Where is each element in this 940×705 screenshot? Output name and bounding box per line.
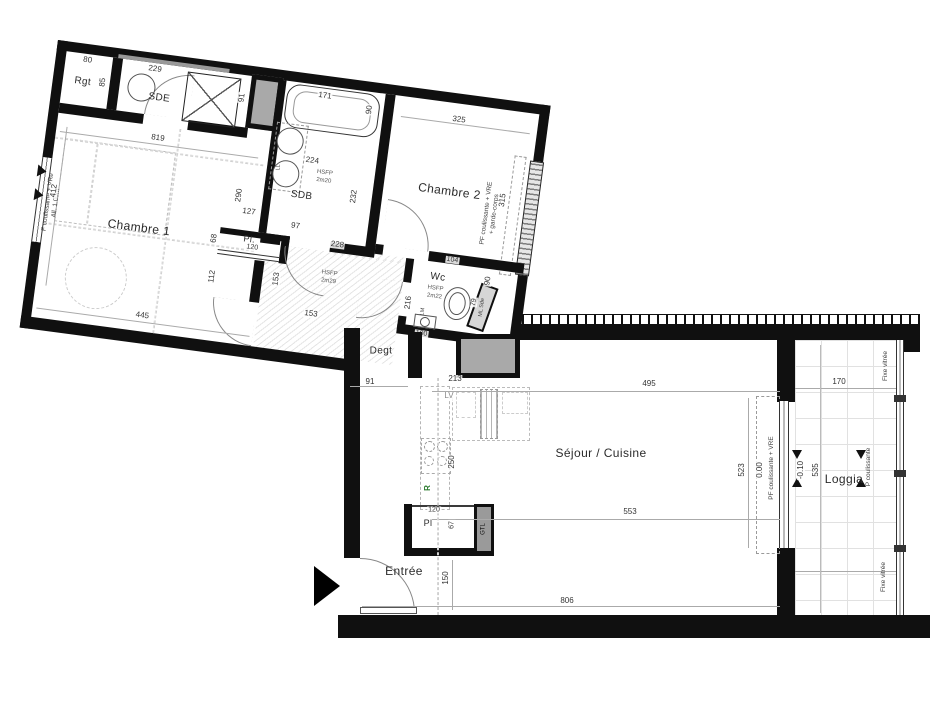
fixture-label-fridge: R	[423, 485, 433, 491]
room-label-rgt: Rgt	[74, 75, 92, 88]
wall	[106, 57, 123, 110]
dim-line	[432, 519, 780, 520]
level-loggia: -0.10	[797, 460, 805, 480]
floorplan: ML Sde Rgt SDE SDB Chambre 1 Chambre 2 W…	[0, 0, 940, 705]
note-line: 2m20	[315, 176, 332, 186]
fixture-label-gtl: GTL	[480, 523, 488, 535]
insulation-strip	[513, 314, 920, 324]
wall	[58, 103, 144, 124]
level-sejour: 0.00	[756, 461, 764, 479]
entree-door-leaf	[360, 607, 417, 614]
dim-kitchen-width: 213	[447, 375, 462, 383]
height-note-wc: HSFP 2m22	[426, 285, 444, 302]
construction-line	[437, 378, 439, 615]
loggia-dim-line	[820, 345, 821, 613]
room-label-degt: Degt	[370, 346, 393, 357]
dim-sejour-right: 523	[738, 462, 746, 477]
window-label-p-coulissante: P coulissante	[865, 448, 873, 487]
window-label-sejour: PF coulissante + VRE	[768, 436, 776, 499]
dim-loggia-width: 170	[831, 378, 846, 386]
duct-sejour	[456, 334, 520, 378]
entrance-arrow-icon	[314, 566, 340, 606]
glazing-mullion	[894, 470, 906, 477]
room-label-chambre2: Chambre 2	[417, 180, 481, 202]
glazing-mullion	[894, 545, 906, 552]
dim-pl2-height: 67	[449, 520, 456, 530]
wall	[513, 324, 920, 340]
dim-sdb-height: 232	[349, 188, 359, 204]
dim-bath-height: 90	[365, 104, 374, 116]
fixture-label-lv: LV	[443, 392, 454, 400]
dim-line	[452, 560, 453, 610]
dim-entree: 150	[442, 570, 450, 585]
wall-pier-top	[777, 340, 795, 402]
dim-line	[748, 398, 749, 548]
dim-ch2-height: 315	[498, 192, 508, 208]
fixture-label-ll: LL	[275, 164, 283, 171]
dim-sdb-bottom: 127	[241, 207, 257, 217]
wall	[403, 258, 414, 283]
wall-pier-bottom	[777, 548, 795, 615]
loggia-glazing	[896, 340, 904, 615]
dim-wc-left: 216	[403, 295, 413, 311]
dim-sejour-mid: 553	[622, 508, 637, 516]
arrow-icon	[34, 188, 45, 201]
window-label-chambre2: PF coulissante + VRE + garde-corps	[479, 181, 503, 246]
sideboard	[480, 389, 498, 439]
window-label-fixe-bottom: Fixe vitrée	[880, 562, 888, 592]
hob-burner	[424, 456, 434, 466]
dim-line	[362, 606, 780, 607]
dim-ch1-bottom: 445	[134, 311, 150, 321]
wall	[344, 328, 360, 558]
shower-tray	[181, 71, 241, 128]
glazing-mullion	[894, 395, 906, 402]
door-arc-chambre1	[208, 297, 257, 346]
dim-line	[432, 391, 780, 392]
height-note-sdb: HSFP 2m20	[315, 169, 333, 186]
note-line: 2m22	[426, 292, 443, 302]
height-note-hall: HSFP 2m29	[320, 269, 338, 286]
dim-sde-width: 229	[147, 64, 163, 74]
dim-kitchen-height: 250	[448, 454, 456, 469]
dim-sejour-top: 495	[641, 380, 656, 388]
room-label-sejour: Séjour / Cuisine	[555, 446, 646, 460]
dim-819: 819	[150, 133, 166, 143]
sejour-sliding-window	[779, 401, 789, 548]
dim-line	[350, 386, 408, 387]
dim-wc-seat: 79	[470, 297, 478, 308]
hob-burner	[424, 441, 435, 452]
dim-loggia-height: 535	[812, 462, 820, 477]
loggia-line	[795, 388, 896, 389]
arrow-icon	[792, 450, 802, 459]
chair	[456, 392, 476, 418]
room-label-loggia: Loggia	[825, 472, 863, 486]
door-arc-chambre2	[382, 199, 435, 252]
room-label-wc: Wc	[430, 271, 447, 284]
room-label-entree: Entrée	[385, 564, 423, 578]
dim-rgt-width: 80	[82, 55, 94, 64]
dim-pl1-height: 68	[209, 232, 218, 244]
window-label-fixe-top: Fixe vitrée	[882, 351, 890, 381]
wall	[408, 332, 422, 378]
dim-wc-side: 90	[483, 275, 492, 287]
dim-sdb-width: 224	[304, 156, 320, 166]
dim-shower: 91	[237, 92, 246, 104]
dim-97: 97	[290, 221, 302, 230]
chair	[502, 392, 528, 414]
dim-112: 112	[207, 269, 217, 285]
wall	[338, 615, 930, 638]
fixture-label-lm: LM	[419, 307, 427, 315]
dim-pl2-width: 120	[427, 507, 441, 514]
dim-ch1-right: 290	[234, 187, 244, 203]
arrow-icon	[37, 164, 48, 177]
dim-degt: 91	[365, 378, 376, 386]
room-label-sdb: SDB	[290, 189, 313, 203]
dim-bottom: 806	[559, 597, 574, 605]
room-label-pl2: Pl	[424, 518, 433, 528]
furniture-circle	[61, 243, 131, 313]
dim-rgt-height: 85	[98, 76, 107, 88]
